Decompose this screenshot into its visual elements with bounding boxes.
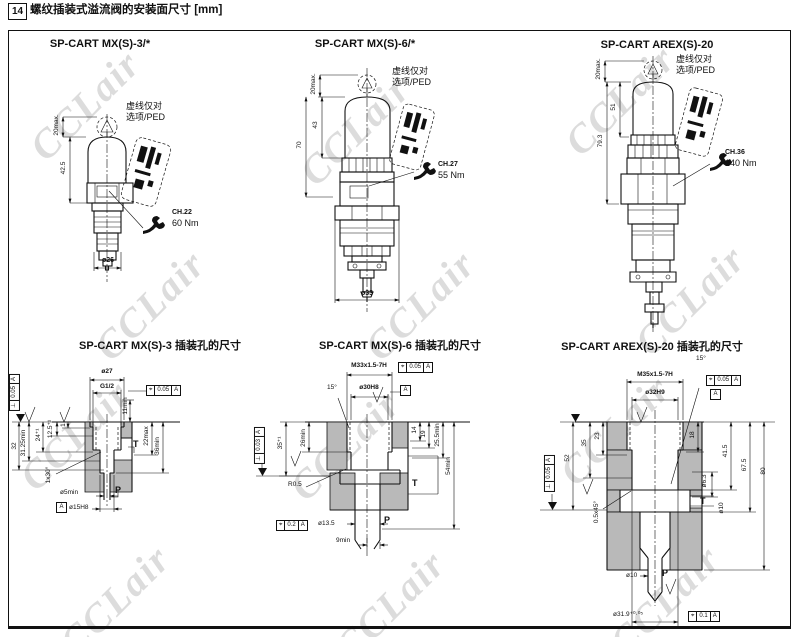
torque: 60 Nm — [172, 218, 199, 229]
dim-dia33: ø33 — [352, 290, 382, 298]
dim-51: 51 — [610, 87, 618, 127]
dim-18: 18 — [689, 425, 697, 445]
figure-arex-cavity — [540, 379, 775, 626]
dim-chamfer-05x45: 0.5x45° — [593, 492, 601, 532]
fcf-value: 0.2 — [285, 521, 298, 530]
dim-22max: 22max — [143, 416, 151, 456]
ped-note-line1: 虚线仅对 — [676, 54, 712, 65]
port-p: P — [384, 515, 390, 525]
dim-79-3: 79.3 — [597, 121, 605, 161]
dim-41-5: 41.5 — [722, 441, 730, 461]
dim-dia32h9: ø32H9 — [635, 389, 675, 397]
dim-20max: 20max. — [310, 64, 318, 104]
port-t: T — [412, 478, 418, 488]
dim-25-5min: 25.5min — [434, 415, 442, 455]
dim-14: 14 — [411, 420, 419, 440]
fcf-datum: A — [299, 521, 307, 530]
dim-angle-15: 15° — [696, 355, 706, 363]
dim-dia5min: ø5min — [60, 489, 78, 497]
dim-54min: 54min — [445, 446, 453, 486]
dim-9min: 9min — [336, 537, 350, 545]
dim-1: 1 — [60, 415, 68, 435]
dim-dia10-p: ø10 — [626, 572, 637, 580]
dim-20max: 20max. — [53, 105, 61, 145]
fcf-position: ⌖0.05A — [146, 385, 181, 396]
fcf-position: ⌖0.05A — [706, 375, 741, 386]
dim-24: 24⁺¹ — [35, 415, 43, 455]
dim-thread-m33: M33x1.5-7H — [334, 362, 404, 370]
wrench-size: CH.27 — [438, 161, 458, 169]
dim-35: 35 — [581, 433, 589, 453]
figure-mx6-valve — [306, 68, 436, 312]
torque: 55 Nm — [438, 170, 465, 181]
fcf-symbol: ⌖ — [147, 386, 155, 395]
torque: 140 Nm — [725, 158, 757, 169]
fcf-value: 0.03 — [255, 436, 264, 453]
fcf-value: 0.05 — [407, 363, 424, 372]
fcf-symbol: ⊥ — [545, 481, 554, 491]
fcf-datum: A — [424, 363, 432, 372]
dim-35: 35⁺¹ — [277, 423, 285, 463]
dim-11min: 11min — [122, 386, 130, 426]
fcf-datum: A — [172, 386, 180, 395]
ped-note-line2: 选项/PED — [392, 77, 431, 88]
ped-note-line1: 虚线仅对 — [126, 101, 162, 112]
drawing-linework — [0, 0, 800, 637]
datum-a-box: A — [56, 502, 67, 513]
fcf-value: 0.05 — [545, 464, 554, 481]
dim-chamfer-1x30: 1x30° — [45, 455, 53, 495]
wrench-size: CH.36 — [725, 149, 745, 157]
fcf-symbol: ⌖ — [689, 612, 697, 621]
wrench-icon — [414, 162, 436, 180]
dim-42-5: 42.5 — [60, 148, 68, 188]
dim-20max: 20max. — [595, 49, 603, 89]
dim-dia15h8: ø15H8 — [69, 504, 89, 512]
dim-52: 52 — [564, 448, 572, 468]
fcf-position-2: ⌖0.2A — [276, 520, 308, 531]
dim-dia6-3: ø6.3 — [701, 471, 709, 491]
fcf-datum: A — [545, 456, 554, 464]
dim-dia10-t: ø10 — [718, 498, 726, 518]
fcf-symbol: ⊥ — [10, 400, 19, 410]
port-t: T — [133, 439, 139, 449]
fcf-value: 0.05 — [715, 376, 732, 385]
ped-label-plate — [674, 87, 723, 158]
dim-67-5: 67.5 — [741, 455, 749, 475]
ped-label-plate — [389, 103, 436, 171]
fcf-datum: A — [10, 375, 19, 383]
dim-thread-m35: M35x1.5-7H — [620, 371, 690, 379]
fcf-datum: A — [732, 376, 740, 385]
port-p: P — [115, 485, 121, 495]
dim-angle-15: 15° — [327, 384, 337, 392]
wrench-icon — [143, 216, 165, 234]
fcf-value: 0.05 — [155, 386, 172, 395]
dim-43: 43 — [312, 105, 320, 145]
fcf-symbol: ⌖ — [399, 363, 407, 372]
fcf-datum: A — [711, 612, 719, 621]
fcf-perpendicularity: ⊥0.05A — [544, 455, 555, 492]
ped-note-line2: 选项/PED — [126, 112, 165, 123]
ped-note-line1: 虚线仅对 — [392, 66, 428, 77]
datum-a-box: A — [710, 389, 721, 400]
dim-80: 80 — [760, 461, 768, 481]
dim-r05: R0.5 — [288, 481, 302, 489]
dim-dia27: ø27 — [92, 368, 122, 376]
ped-label-plate — [120, 136, 172, 207]
dim-31-25min: 31.25min — [20, 423, 28, 463]
dim-dia13-5: ø13.5 — [318, 520, 335, 528]
dim-26min: 26min — [300, 418, 308, 458]
port-t: T — [700, 496, 706, 506]
fcf-symbol: ⌖ — [277, 521, 285, 530]
dim-g12: G1/2 — [92, 383, 122, 391]
fcf-perpendicularity: ⊥0.03A — [254, 427, 265, 464]
fcf-datum: A — [255, 428, 264, 436]
dim-70: 70 — [296, 125, 304, 165]
figure-arex-valve — [605, 56, 732, 332]
dim-dia26: ø26 — [93, 257, 123, 265]
datum-a-box: A — [400, 385, 411, 396]
fcf-position-2: ⌖0.1A — [688, 611, 720, 622]
port-p: P — [662, 568, 668, 578]
dim-dia30h8: ø30H8 — [349, 384, 389, 392]
dim-32: 32 — [11, 426, 19, 466]
ped-note-line2: 选项/PED — [676, 65, 715, 76]
dim-19: 19 — [420, 424, 428, 444]
fcf-perpendicularity: ⊥0.05A — [9, 374, 20, 411]
fcf-position: ⌖0.05A — [398, 362, 433, 373]
fcf-value: 0.05 — [10, 383, 19, 400]
dim-dia31-9: ø31.9⁺⁰·⁰⁵ — [613, 611, 643, 619]
dim-12-5: 12.5⁺¹ — [47, 409, 55, 449]
wrench-size: CH.22 — [172, 209, 192, 217]
dim-36min: 36min — [154, 426, 162, 466]
fcf-symbol: ⊥ — [255, 453, 264, 463]
catalog-page: CCLair CCLair CCLair CCLair CCLair CCLai… — [0, 0, 800, 637]
dim-23: 23 — [594, 426, 602, 446]
fcf-symbol: ⌖ — [707, 376, 715, 385]
fcf-value: 0.1 — [697, 612, 710, 621]
